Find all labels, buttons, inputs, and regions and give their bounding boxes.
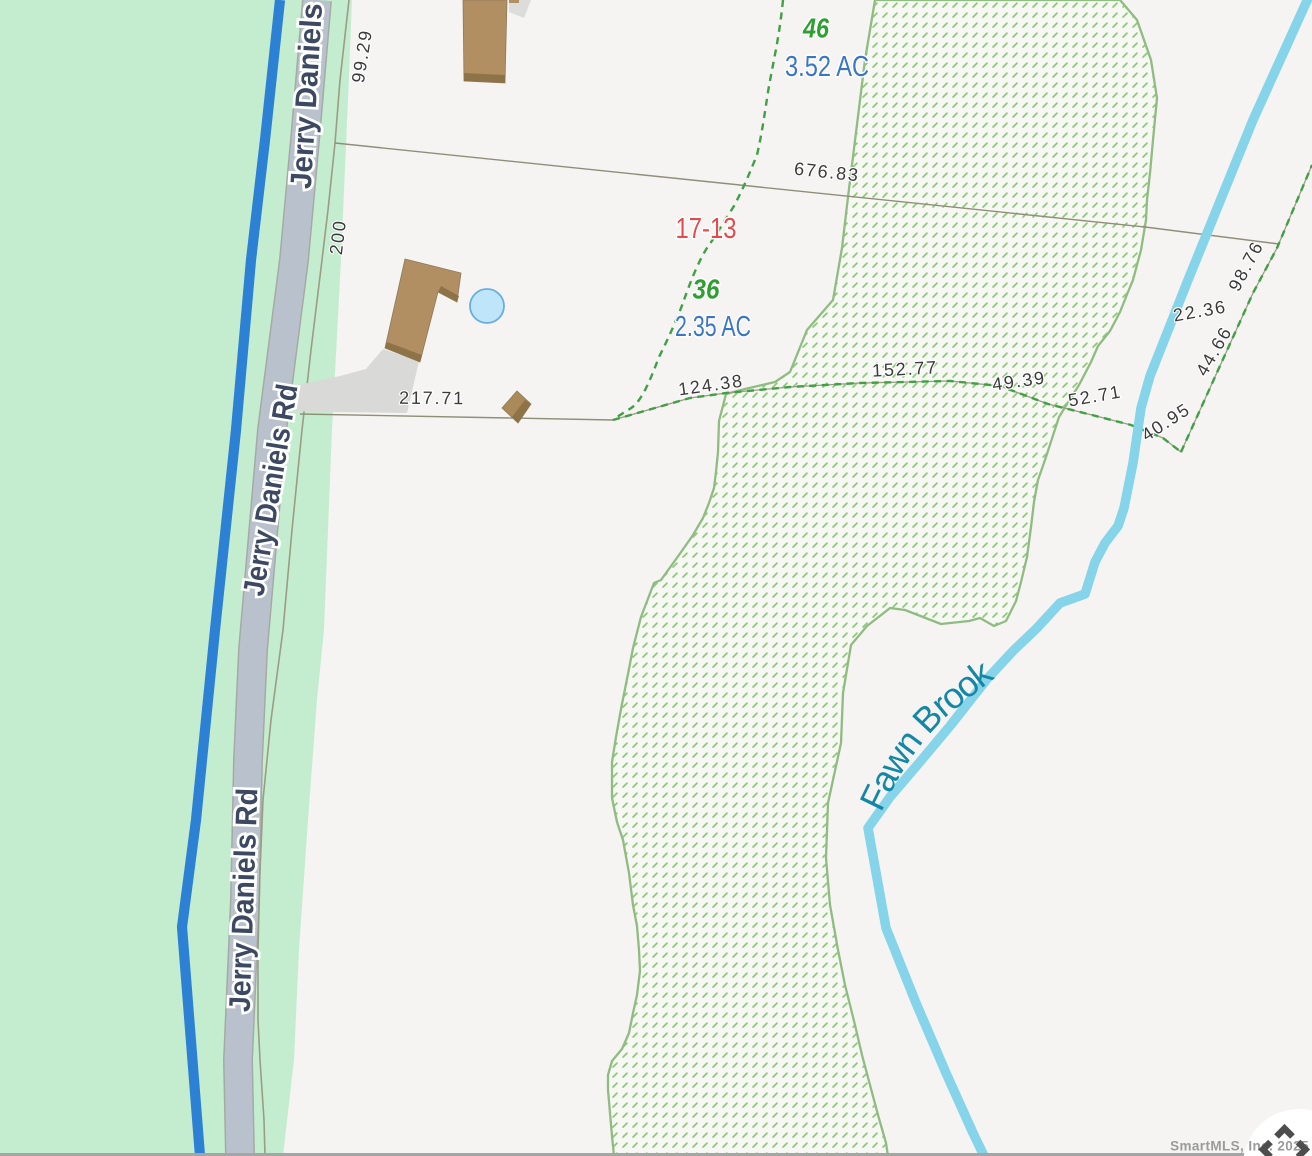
svg-text:SmartMLS, Inc. 2025: SmartMLS, Inc. 2025	[1170, 1139, 1309, 1154]
svg-text:17-13: 17-13	[676, 213, 737, 245]
svg-text:217.71: 217.71	[399, 388, 465, 409]
svg-text:46: 46	[802, 13, 829, 44]
svg-text:36: 36	[693, 274, 720, 305]
svg-text:2.35 AC: 2.35 AC	[675, 311, 751, 343]
svg-text:3.52 AC: 3.52 AC	[785, 51, 869, 83]
svg-text:152.77: 152.77	[872, 357, 939, 380]
